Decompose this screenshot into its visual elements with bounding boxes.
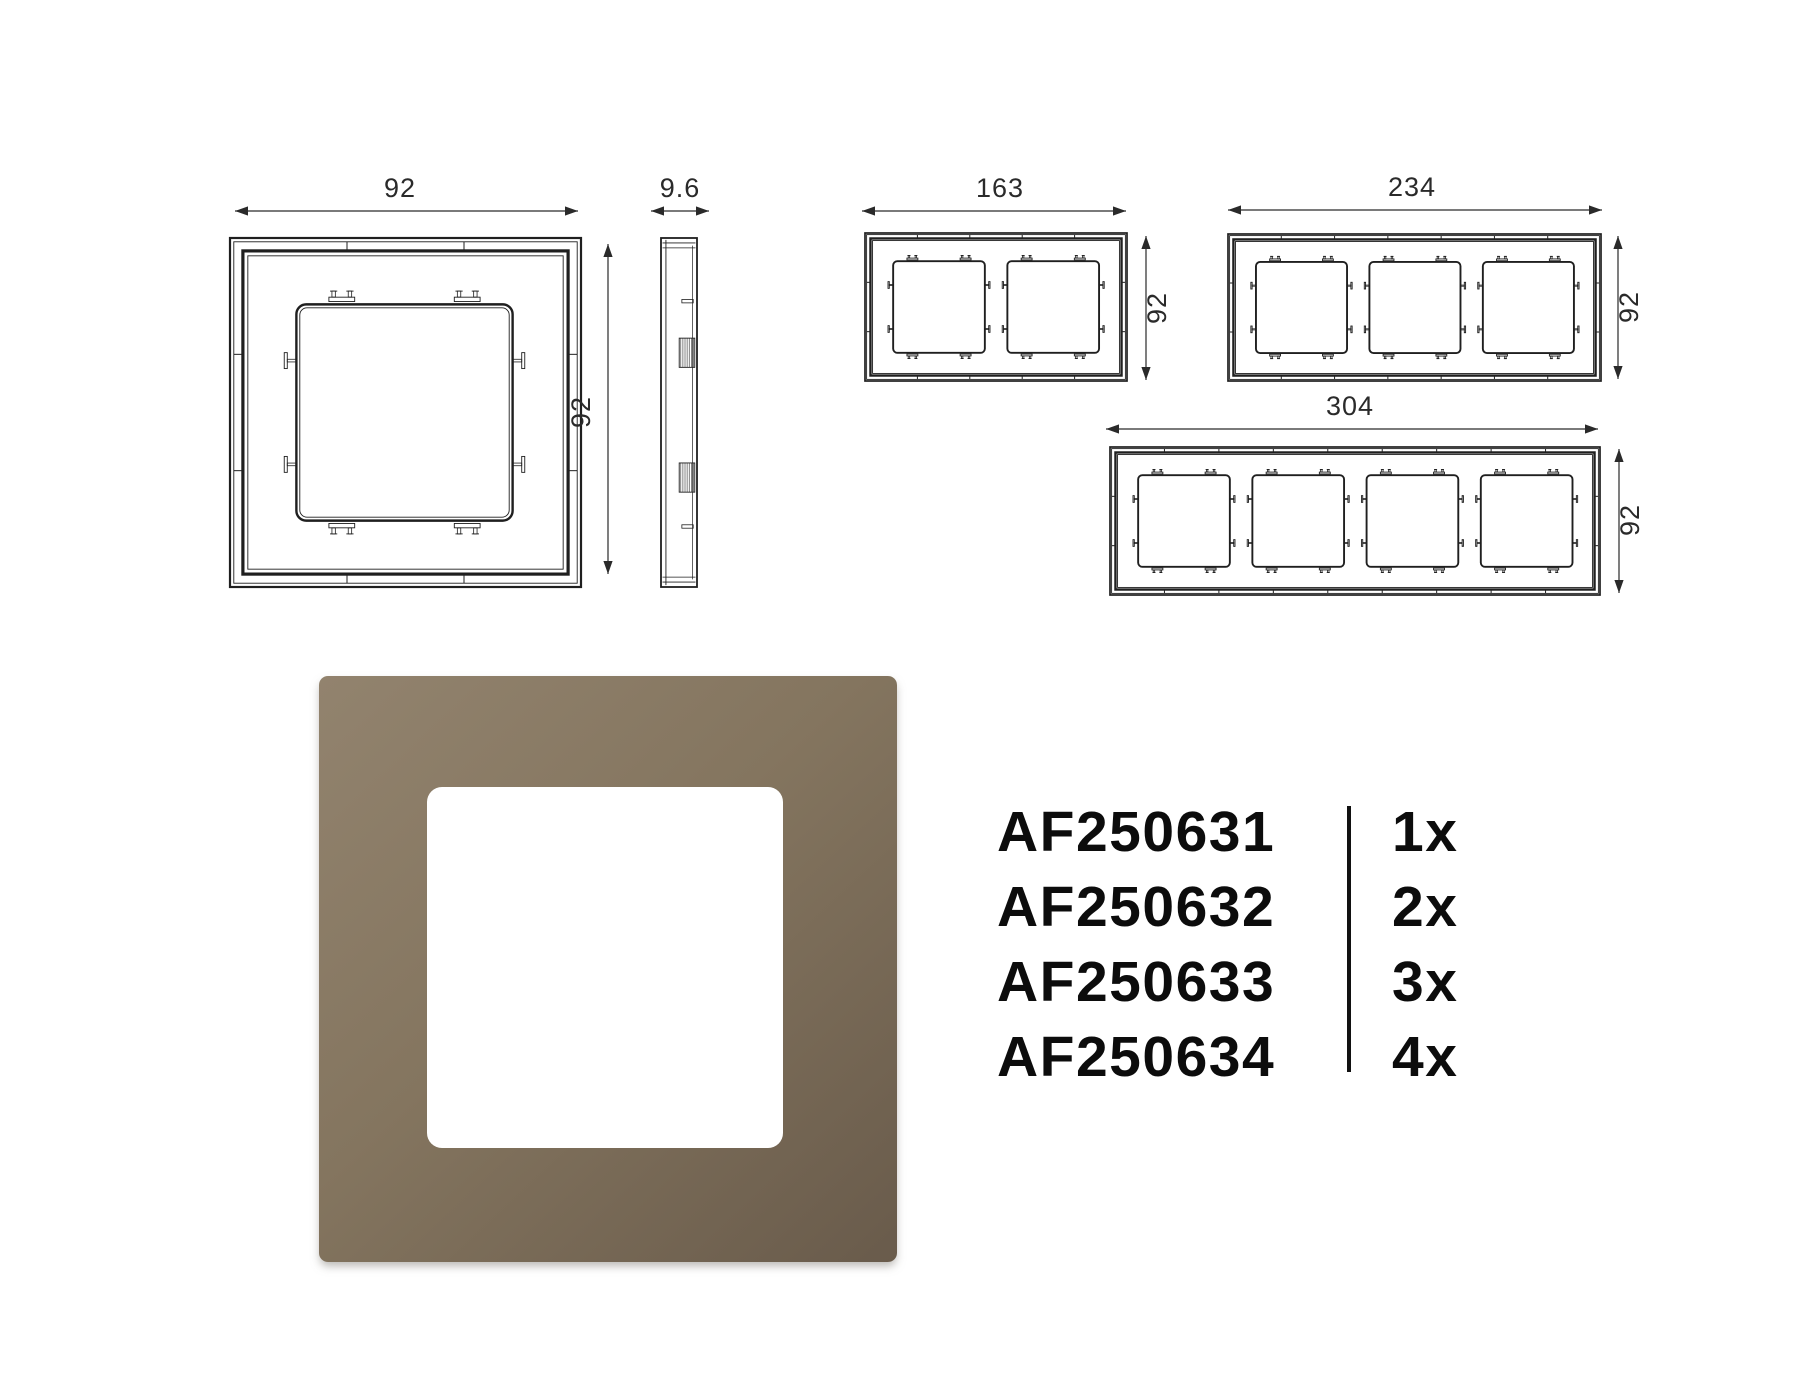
svg-text:92: 92 [1615, 504, 1645, 536]
part-qty: 2x [1392, 870, 1458, 945]
svg-text:234: 234 [1388, 172, 1436, 202]
dimension-163: 163 [862, 173, 1126, 216]
svg-text:92: 92 [384, 173, 416, 203]
part-code: AF250634 [997, 1020, 1275, 1095]
part-qty-column: 1x 2x 3x 4x [1392, 795, 1458, 1095]
technical-drawings-svg: 929.616323430492929292 [0, 0, 1800, 1400]
table-divider-line [1347, 806, 1351, 1072]
svg-text:92: 92 [1614, 291, 1644, 323]
part-qty: 3x [1392, 945, 1458, 1020]
svg-text:92: 92 [566, 396, 596, 428]
svg-text:163: 163 [976, 173, 1024, 203]
dimension-92: 92 [1613, 236, 1644, 379]
front-view-1-gang [230, 238, 581, 587]
datasheet-page: 929.616323430492929292 AF250631 AF250632… [0, 0, 1800, 1400]
front-view-2-gang [865, 233, 1127, 381]
dimension-92: 92 [235, 173, 578, 216]
front-view-4-gang [1110, 447, 1600, 595]
front-view-3-gang [1228, 234, 1601, 381]
dimension-92: 92 [1614, 449, 1645, 593]
part-qty: 1x [1392, 795, 1458, 870]
part-code: AF250632 [997, 870, 1275, 945]
part-qty: 4x [1392, 1020, 1458, 1095]
product-render-frame [319, 676, 897, 1262]
svg-text:92: 92 [1142, 292, 1172, 324]
dimension-304: 304 [1106, 391, 1598, 434]
side-view-1-gang [661, 238, 697, 587]
dimension-92: 92 [1141, 236, 1172, 380]
product-render-cutout [427, 787, 783, 1148]
parts-table: AF250631 AF250632 AF250633 AF250634 1x 2… [997, 795, 1597, 1105]
dimension-92: 92 [566, 244, 613, 574]
part-code: AF250631 [997, 795, 1275, 870]
part-code: AF250633 [997, 945, 1275, 1020]
svg-text:9.6: 9.6 [660, 173, 701, 203]
dimension-234: 234 [1228, 172, 1602, 215]
dimension-9.6: 9.6 [651, 173, 709, 216]
part-codes-column: AF250631 AF250632 AF250633 AF250634 [997, 795, 1275, 1095]
svg-text:304: 304 [1326, 391, 1374, 421]
